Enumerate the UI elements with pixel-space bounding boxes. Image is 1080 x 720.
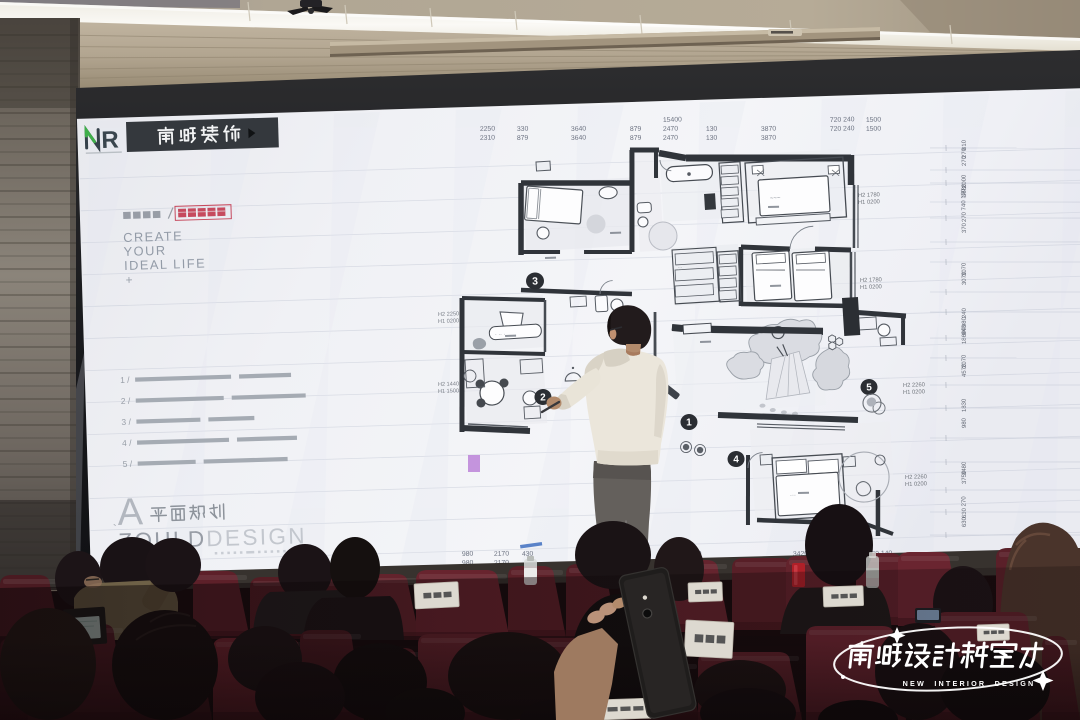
svg-text:720 240: 720 240: [830, 125, 855, 133]
svg-text:5: 5: [866, 382, 872, 393]
svg-text:2470: 2470: [663, 126, 679, 133]
svg-text:3870: 3870: [761, 126, 777, 133]
svg-text:3: 3: [532, 275, 538, 287]
svg-text:H2 1780: H2 1780: [858, 192, 880, 199]
svg-text:370: 370: [962, 222, 968, 233]
svg-text:R: R: [101, 126, 119, 154]
svg-text:H1 0200: H1 0200: [860, 284, 882, 291]
svg-text:1500: 1500: [866, 117, 882, 124]
svg-text:4 /: 4 /: [122, 438, 132, 448]
svg-text:3070: 3070: [962, 271, 968, 285]
svg-text:130: 130: [706, 126, 718, 133]
svg-text:15400: 15400: [663, 116, 682, 124]
svg-text:240: 240: [962, 307, 968, 318]
svg-text:H2 2250: H2 2250: [438, 311, 459, 318]
svg-text:2310: 2310: [480, 135, 496, 142]
svg-text:3750: 3750: [962, 470, 968, 484]
svg-text:2250: 2250: [480, 126, 496, 133]
svg-text:`: `: [113, 522, 117, 536]
svg-text:H2 1780: H2 1780: [860, 277, 882, 284]
svg-text:879: 879: [630, 126, 642, 133]
svg-text:3640: 3640: [571, 126, 587, 133]
svg-text:270 740 130: 270 740 130: [961, 188, 968, 222]
svg-text:~~~: ~~~: [770, 196, 781, 202]
svg-text:879: 879: [630, 135, 642, 142]
svg-text::::: :::: [678, 266, 682, 272]
svg-text:···: ···: [790, 493, 796, 499]
svg-text:630: 630: [962, 516, 968, 527]
svg-text:3870: 3870: [761, 135, 777, 142]
svg-text:NEW INTERIOR DESIGN: NEW INTERIOR DESIGN: [903, 679, 1036, 688]
svg-text:H2 1440: H2 1440: [438, 381, 459, 388]
svg-text:130: 130: [706, 135, 718, 142]
svg-text:1830: 1830: [962, 398, 968, 412]
svg-text:DESIGN: DESIGN: [206, 523, 307, 551]
svg-text:H1 0200: H1 0200: [903, 389, 925, 396]
svg-text:H2 2260: H2 2260: [903, 382, 925, 389]
svg-text:2: 2: [540, 392, 546, 403]
svg-text:IDEAL LIFE: IDEAL LIFE: [124, 255, 207, 273]
svg-text:2470: 2470: [663, 135, 679, 142]
svg-text:H2 2260: H2 2260: [905, 474, 927, 481]
svg-text:630 270: 630 270: [961, 496, 968, 519]
svg-text:720 240: 720 240: [830, 116, 855, 124]
svg-text:2 /: 2 /: [121, 396, 131, 406]
svg-text:4: 4: [733, 454, 739, 465]
svg-text:4570: 4570: [962, 363, 968, 377]
svg-text:18600: 18600: [962, 327, 969, 345]
svg-text:H1 1500: H1 1500: [438, 388, 459, 395]
svg-text:· ·· ·: · ·· ·: [495, 332, 506, 338]
svg-text:3640: 3640: [571, 135, 587, 142]
svg-text:3 /: 3 /: [121, 417, 131, 427]
svg-text:879: 879: [517, 135, 529, 142]
svg-text:1 /: 1 /: [120, 375, 130, 385]
svg-text:H1 0200: H1 0200: [858, 199, 880, 206]
svg-text:+: +: [125, 273, 132, 287]
svg-text:330: 330: [517, 126, 529, 133]
svg-text:980: 980: [962, 417, 968, 428]
svg-text:5 /: 5 /: [123, 459, 133, 469]
svg-text:2170: 2170: [494, 550, 510, 557]
svg-text:980: 980: [462, 551, 474, 558]
svg-text:1: 1: [686, 417, 692, 428]
svg-text:1500: 1500: [866, 126, 882, 133]
svg-text:H1 0200: H1 0200: [905, 481, 927, 488]
svg-text:H1 0200: H1 0200: [438, 318, 459, 325]
svg-text:270: 270: [962, 155, 968, 166]
